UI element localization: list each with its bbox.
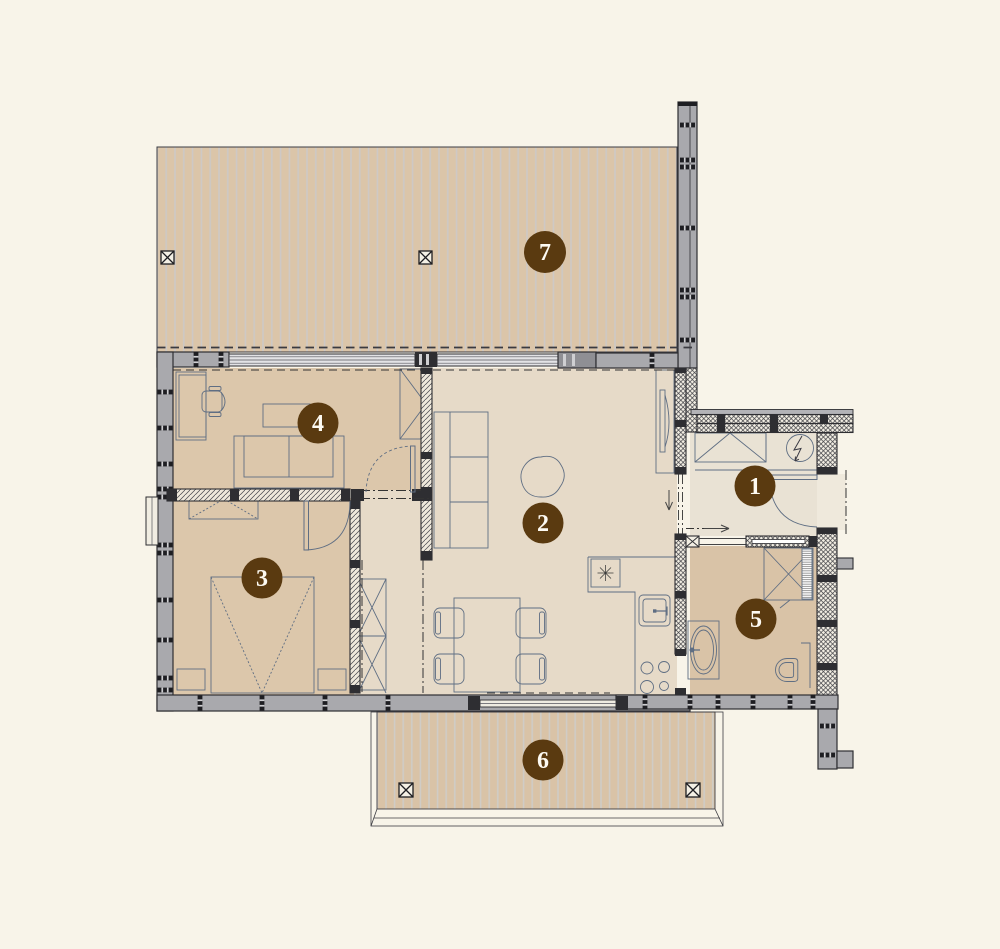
svg-text:1: 1 <box>749 474 761 500</box>
svg-text:4: 4 <box>312 411 324 437</box>
svg-text:5: 5 <box>750 607 762 633</box>
svg-text:2: 2 <box>537 511 549 537</box>
svg-text:3: 3 <box>256 566 268 592</box>
svg-text:7: 7 <box>539 240 551 266</box>
svg-text:6: 6 <box>537 748 549 774</box>
